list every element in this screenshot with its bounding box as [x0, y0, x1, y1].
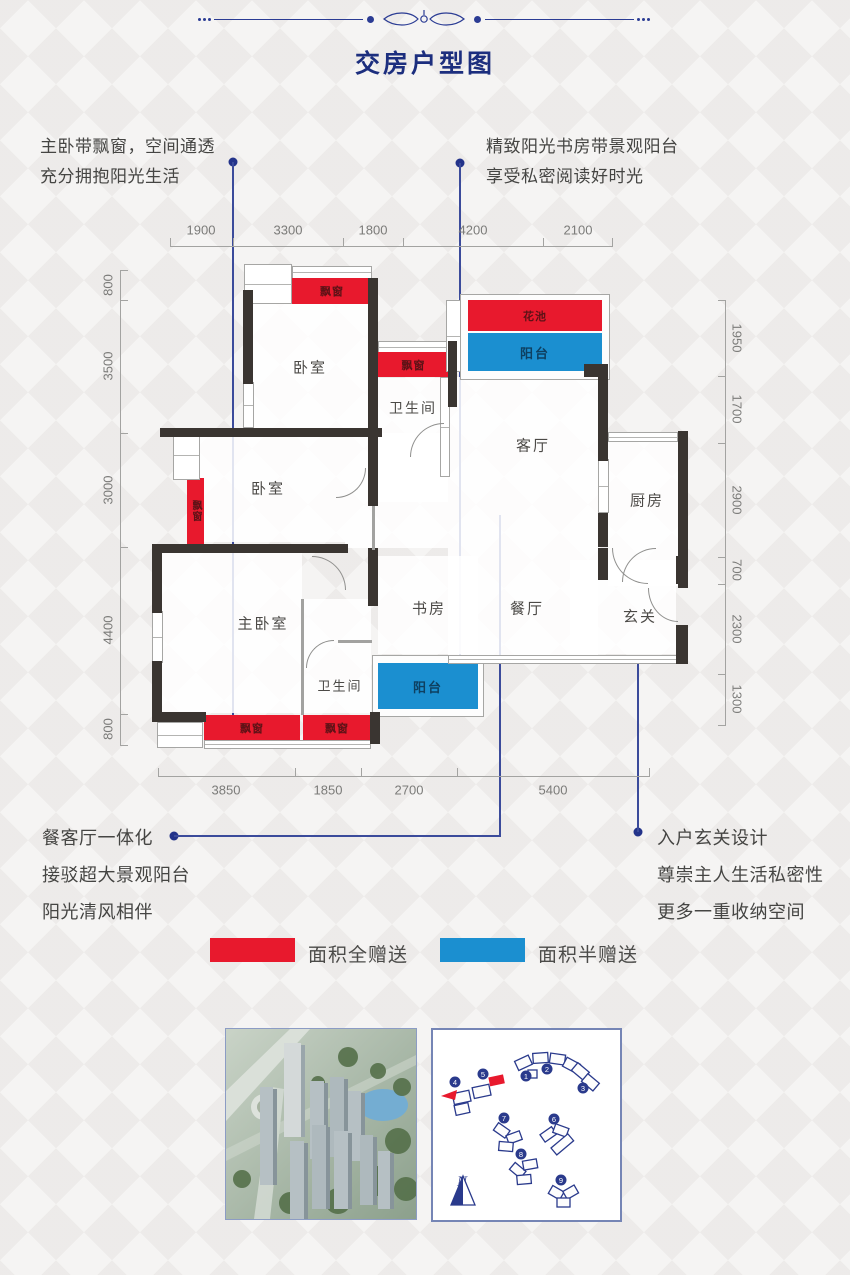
dim-label: 1850: [314, 783, 343, 798]
svg-text:5: 5: [481, 1070, 485, 1079]
legend-swatch-half-gift: [440, 938, 525, 962]
svg-text:3: 3: [581, 1084, 585, 1093]
svg-text:1: 1: [524, 1072, 528, 1081]
dim-label: 3850: [212, 783, 241, 798]
ornament-dots-icon: [198, 18, 211, 21]
svg-text:8: 8: [519, 1150, 523, 1159]
aerial-photo: [225, 1028, 417, 1220]
window: [243, 382, 254, 428]
wall-segment: [160, 428, 382, 437]
room-label: 卧室: [293, 357, 327, 378]
dim-label: 4400: [101, 616, 116, 645]
leader-line: [637, 660, 639, 832]
bay-window-zone: 飘窗: [187, 478, 204, 544]
window-corner-bay: [173, 430, 200, 480]
wall-segment: [598, 513, 608, 547]
annotation-top-right: 精致阳光书房带景观阳台 享受私密阅读好时光: [486, 132, 679, 192]
dim-label: 2100: [564, 223, 593, 238]
partition-wall: [372, 506, 375, 550]
dim-label: 800: [101, 274, 116, 296]
dim-label: 4200: [459, 223, 488, 238]
svg-text:7: 7: [502, 1114, 506, 1123]
dim-label: 800: [101, 718, 116, 740]
window: [448, 655, 678, 664]
svg-text:2: 2: [545, 1065, 549, 1074]
dim-label: 2300: [730, 615, 745, 644]
room-label: 玄关: [623, 606, 657, 627]
site-plan: 1 2 3 4 5 6 7 8 9 N: [431, 1028, 622, 1222]
partition-wall: [338, 640, 372, 643]
wall-segment: [152, 544, 348, 553]
wall-segment: [598, 548, 608, 580]
floorplan-poster: 交房户型图 主卧带飘窗，空间通透 充分拥抱阳光生活 精致阳光书房带景观阳台 享受…: [0, 0, 850, 1275]
dim-label: 3500: [101, 352, 116, 381]
dim-label: 1300: [730, 685, 745, 714]
wall-segment: [598, 364, 608, 461]
wall-segment: [152, 661, 162, 717]
dim-label: 3000: [101, 476, 116, 505]
legend-label-half-gift: 面积半赠送: [538, 940, 638, 967]
dimension-line-left: [120, 270, 121, 745]
balcony-bottom-zone: 阳台: [378, 663, 478, 709]
dim-label: 1950: [730, 324, 745, 353]
legend-label-full-gift: 面积全赠送: [308, 940, 408, 967]
window: [598, 459, 609, 513]
bay-window-zone: 飘窗: [292, 278, 372, 304]
room-label: 厨房: [630, 490, 664, 511]
annotation-bottom-right: 入户玄关设计 尊崇主人生活私密性 更多一重收纳空间: [657, 820, 824, 931]
bay-window-zone: 飘窗: [378, 352, 449, 377]
dimension-line-bottom: [158, 776, 650, 777]
svg-text:6: 6: [552, 1115, 556, 1124]
dimension-line-top: [170, 246, 613, 247]
wall-segment: [676, 650, 688, 664]
dimension-line-right: [725, 300, 726, 725]
aerial-photo-graphic: [226, 1029, 416, 1219]
dim-label: 1900: [187, 223, 216, 238]
bay-window-zone: 飘窗: [204, 715, 300, 741]
room-label: 餐厅: [510, 598, 544, 619]
wall-segment: [584, 364, 606, 377]
annotation-top-left: 主卧带飘窗，空间通透 充分拥抱阳光生活: [40, 132, 215, 192]
legend-swatch-full-gift: [210, 938, 295, 962]
window: [608, 432, 678, 442]
room-label: 卫生间: [389, 398, 437, 418]
balcony-top-zone: 阳台: [468, 333, 602, 371]
svg-text:4: 4: [453, 1078, 457, 1087]
partition-wall: [301, 599, 304, 715]
dim-label: 1700: [730, 395, 745, 424]
wall-segment: [370, 712, 380, 744]
site-plan-graphic: 1 2 3 4 5 6 7 8 9 N: [433, 1030, 620, 1220]
dim-label: 2700: [395, 783, 424, 798]
svg-text:9: 9: [559, 1176, 563, 1185]
room-label: 客厅: [516, 435, 550, 456]
room-label: 卫生间: [317, 676, 362, 695]
dim-label: 3300: [274, 223, 303, 238]
header-ornament: [195, 8, 653, 30]
annotation-bottom-left: 餐客厅一体化 接驳超大景观阳台 阳光清风相伴: [42, 820, 190, 931]
bay-window-zone: 飘窗: [303, 715, 371, 741]
wall-segment: [448, 341, 457, 407]
dim-label: 5400: [539, 783, 568, 798]
dim-label: 1800: [359, 223, 388, 238]
dim-label: 2900: [730, 486, 745, 515]
door-arc: [312, 556, 346, 590]
window: [152, 611, 163, 663]
wall-segment: [152, 553, 162, 613]
room-label: 卧室: [251, 478, 285, 499]
ornament-dots-icon: [637, 18, 650, 21]
leader-line: [174, 835, 501, 837]
wall-segment: [243, 290, 253, 384]
room-label: 主卧室: [237, 613, 288, 634]
room-label: 书房: [412, 598, 446, 619]
window-corner-bay: [157, 722, 203, 748]
wall-segment: [676, 556, 686, 584]
window: [204, 740, 371, 749]
wall-segment: [368, 548, 378, 606]
wall-segment: [152, 712, 206, 722]
page-title: 交房户型图: [0, 44, 850, 80]
flower-bed-zone: 花池: [468, 300, 602, 331]
flourish-icon: [378, 8, 470, 30]
wall-segment: [368, 278, 378, 368]
dim-label: 700: [730, 559, 745, 581]
